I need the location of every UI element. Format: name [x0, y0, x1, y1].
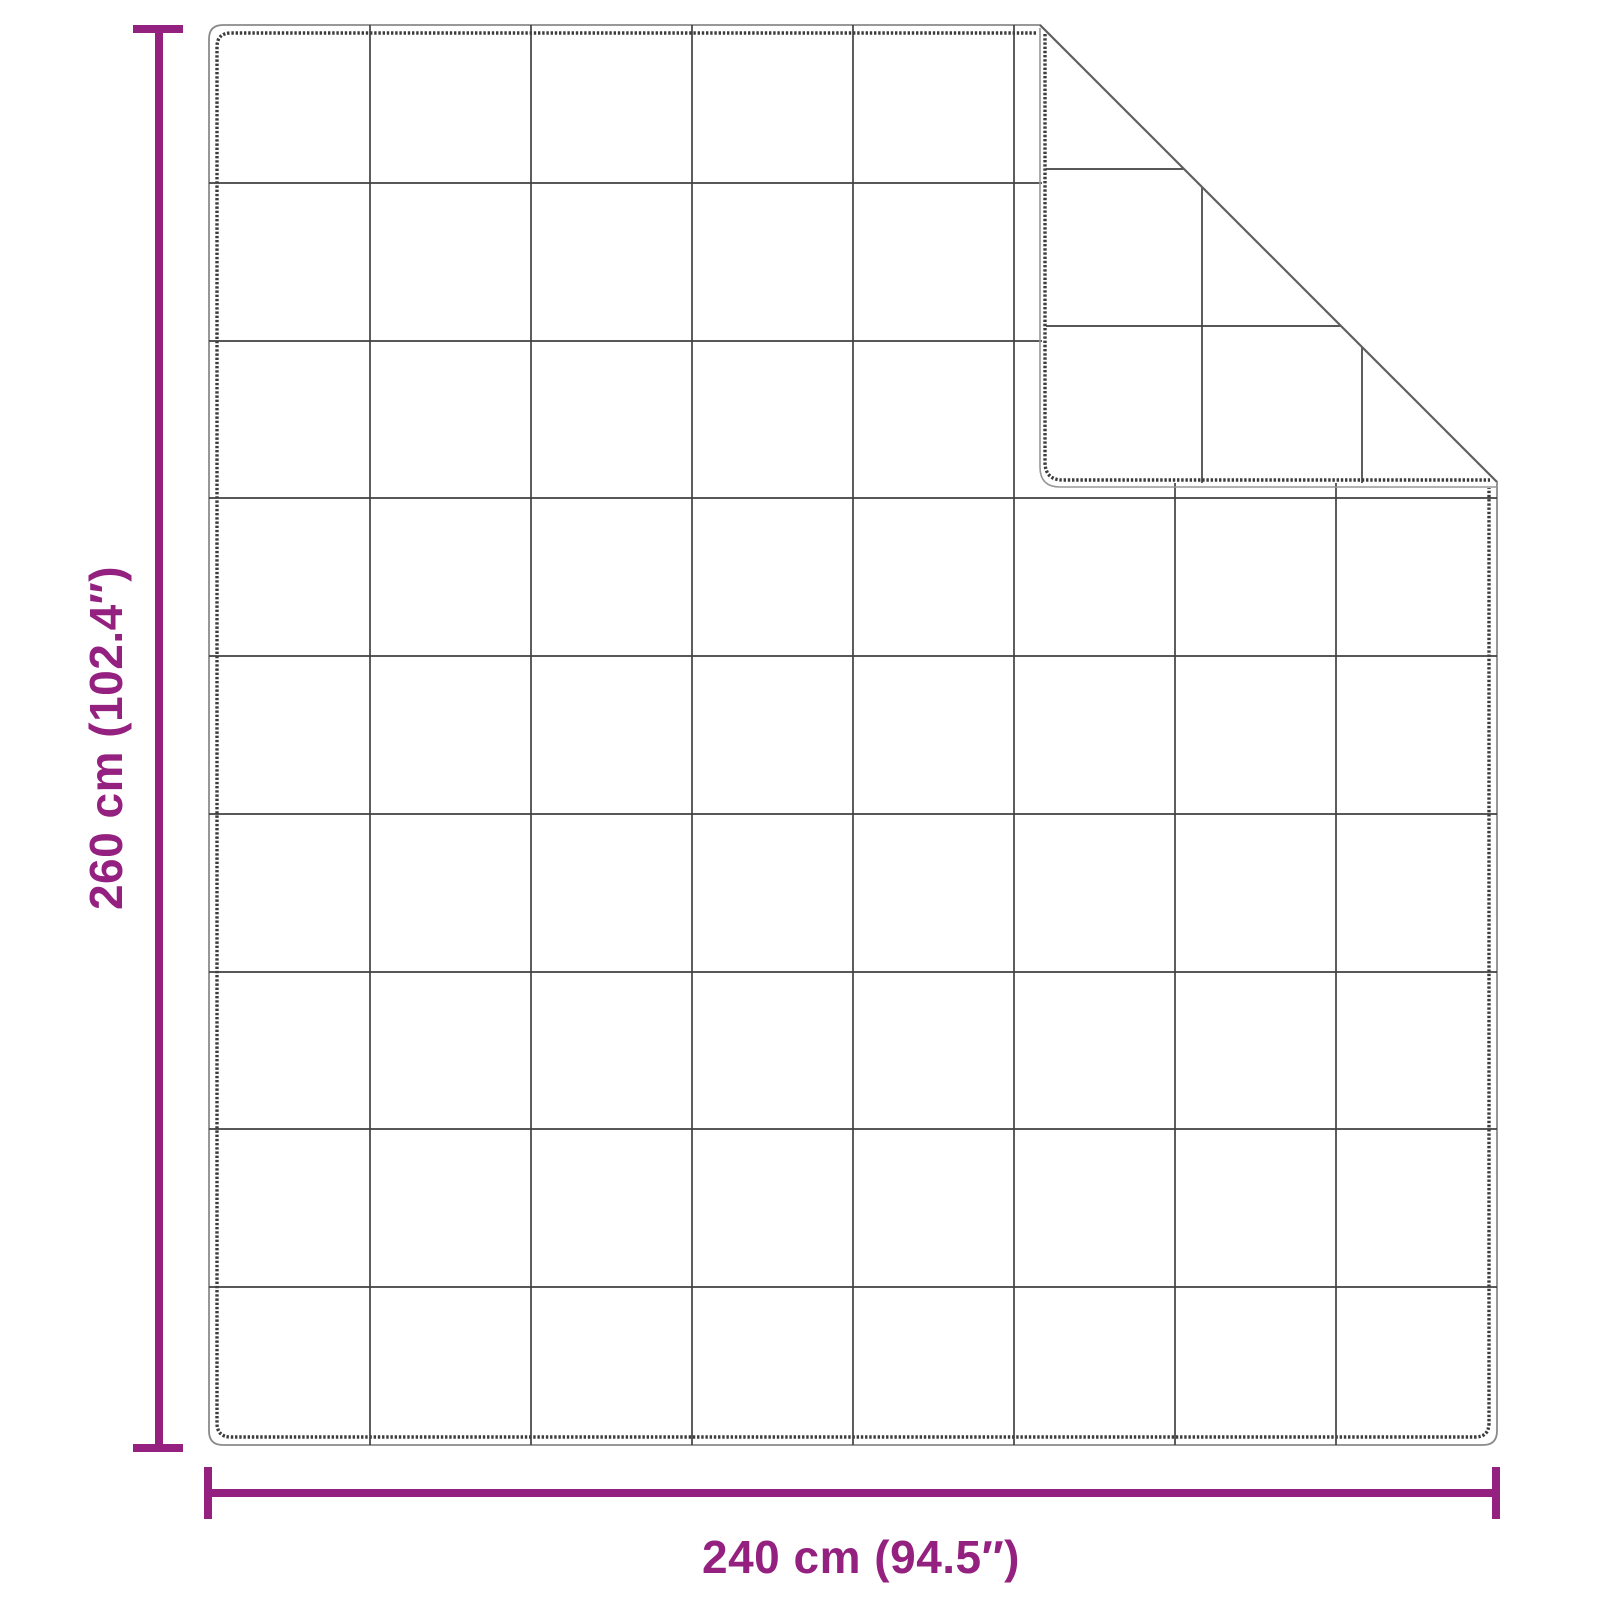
height-dimension-top-cap — [133, 25, 183, 33]
width-dimension-left-cap — [204, 1467, 212, 1519]
height-dimension-stem — [155, 29, 163, 1448]
height-dimension-label: 260 cm (102.4″) — [81, 566, 131, 910]
width-dimension-line — [204, 1467, 1500, 1519]
width-dimension-stem — [209, 1489, 1497, 1497]
width-dimension-right-cap — [1492, 1467, 1500, 1519]
height-dimension-line — [133, 25, 183, 1452]
product-dimension-diagram: 260 cm (102.4″) 240 cm (94.5″) — [0, 0, 1600, 1600]
width-dimension-label: 240 cm (94.5″) — [702, 1532, 1020, 1582]
height-dimension-bottom-cap — [133, 1444, 183, 1452]
blanket-illustration — [0, 0, 1600, 1600]
